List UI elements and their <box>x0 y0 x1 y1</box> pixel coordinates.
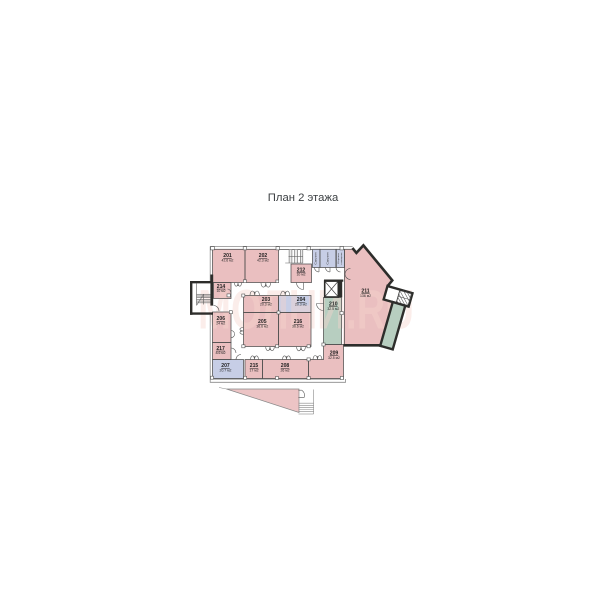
svg-text:136 м2: 136 м2 <box>360 294 371 298</box>
svg-text:Санузел: Санузел <box>314 252 318 264</box>
svg-text:10 м2: 10 м2 <box>296 273 305 277</box>
svg-text:26 м2: 26 м2 <box>280 368 289 372</box>
svg-text:МОЛНИ.RU: МОЛНИ.RU <box>198 278 414 341</box>
svg-text:Санузел: Санузел <box>326 252 330 264</box>
svg-text:32.5 м2: 32.5 м2 <box>328 356 340 360</box>
svg-text:20.3 м2: 20.3 м2 <box>260 302 272 306</box>
svg-text:помещения: помещения <box>341 252 343 265</box>
svg-text:32.5 м2: 32.5 м2 <box>327 307 339 311</box>
svg-text:24 м2: 24 м2 <box>216 321 225 325</box>
svg-text:Уборочная: Уборочная <box>338 252 340 264</box>
svg-text:17 м2: 17 м2 <box>249 368 258 372</box>
svg-text:36.6 м2: 36.6 м2 <box>256 324 268 328</box>
svg-text:8.6 м2: 8.6 м2 <box>216 351 226 355</box>
svg-text:20.3 м2: 20.3 м2 <box>295 302 307 306</box>
svg-text:20.7 м2: 20.7 м2 <box>220 368 232 372</box>
svg-text:10 м2: 10 м2 <box>216 289 225 293</box>
svg-text:42.6 м2: 42.6 м2 <box>222 259 234 263</box>
svg-text:36.6 м2: 36.6 м2 <box>292 324 304 328</box>
svg-text:42.3 м2: 42.3 м2 <box>257 259 269 263</box>
svg-text:План 2 этажа: План 2 этажа <box>268 192 339 204</box>
